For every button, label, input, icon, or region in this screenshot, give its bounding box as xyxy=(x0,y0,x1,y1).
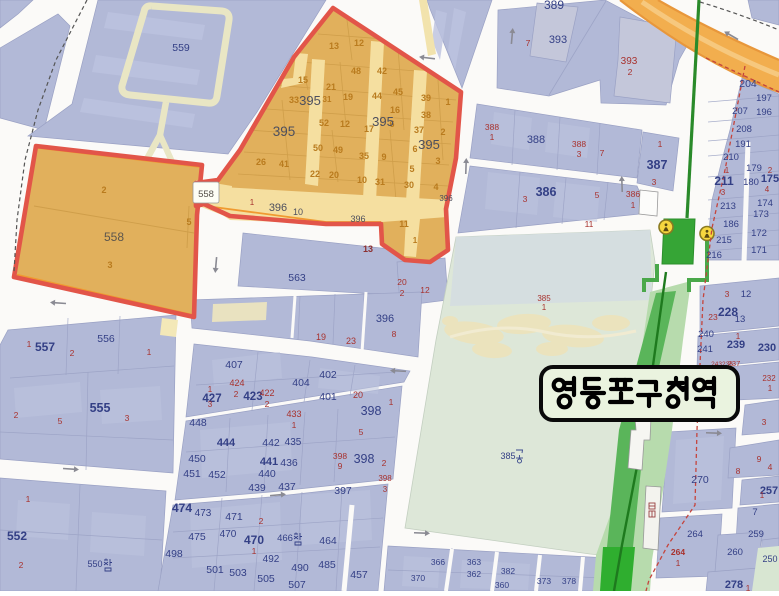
svg-text:180: 180 xyxy=(743,177,759,188)
svg-text:2: 2 xyxy=(628,67,633,77)
svg-text:378: 378 xyxy=(562,576,576,586)
svg-text:38: 38 xyxy=(421,110,431,120)
svg-text:3: 3 xyxy=(208,400,213,409)
svg-text:8: 8 xyxy=(736,466,741,476)
svg-text:2: 2 xyxy=(101,185,106,195)
svg-text:23: 23 xyxy=(708,312,718,322)
svg-text:6: 6 xyxy=(412,144,417,154)
svg-text:485: 485 xyxy=(318,559,336,571)
svg-text:211: 211 xyxy=(714,174,734,188)
svg-text:1: 1 xyxy=(147,347,152,357)
svg-text:172: 172 xyxy=(751,228,767,239)
svg-text:20: 20 xyxy=(353,390,363,400)
svg-text:436: 436 xyxy=(280,457,298,469)
svg-text:48: 48 xyxy=(351,66,361,76)
svg-text:5: 5 xyxy=(186,217,191,227)
svg-text:558: 558 xyxy=(104,230,124,244)
svg-text:393: 393 xyxy=(549,34,567,46)
svg-text:558: 558 xyxy=(198,189,214,200)
svg-text:1: 1 xyxy=(208,385,213,394)
svg-text:240: 240 xyxy=(698,329,714,340)
svg-text:1: 1 xyxy=(27,339,32,349)
svg-text:396: 396 xyxy=(350,214,365,224)
svg-text:241: 241 xyxy=(697,344,713,355)
svg-text:451: 451 xyxy=(183,468,201,480)
svg-text:471: 471 xyxy=(225,511,243,523)
svg-text:171: 171 xyxy=(751,245,767,256)
svg-text:402: 402 xyxy=(319,369,337,381)
svg-text:395: 395 xyxy=(299,93,321,108)
svg-text:11: 11 xyxy=(399,219,409,229)
svg-text:457: 457 xyxy=(350,569,368,581)
svg-text:4: 4 xyxy=(433,182,438,192)
svg-text:13: 13 xyxy=(363,244,373,254)
svg-text:30: 30 xyxy=(404,180,414,190)
svg-text:389: 389 xyxy=(544,0,564,12)
svg-text:474: 474 xyxy=(172,501,192,515)
svg-text:475: 475 xyxy=(188,531,206,543)
svg-text:559: 559 xyxy=(172,42,190,54)
svg-text:2: 2 xyxy=(234,389,239,399)
svg-text:1: 1 xyxy=(413,236,418,245)
svg-text:35: 35 xyxy=(359,151,369,161)
svg-text:7: 7 xyxy=(526,38,531,48)
svg-text:41: 41 xyxy=(279,159,289,169)
svg-text:490: 490 xyxy=(291,562,309,574)
svg-text:439: 439 xyxy=(248,482,266,494)
svg-text:12: 12 xyxy=(420,285,430,295)
svg-text:385: 385 xyxy=(537,294,551,303)
svg-text:2: 2 xyxy=(382,458,387,468)
svg-text:395: 395 xyxy=(273,124,296,139)
svg-text:12: 12 xyxy=(354,38,364,48)
svg-text:1: 1 xyxy=(746,583,751,591)
svg-text:4: 4 xyxy=(768,462,773,472)
svg-text:5: 5 xyxy=(359,427,364,437)
svg-text:259: 259 xyxy=(748,529,764,540)
svg-text:442: 442 xyxy=(262,437,280,449)
svg-text:388: 388 xyxy=(485,122,499,132)
svg-text:1: 1 xyxy=(445,97,450,107)
svg-text:404: 404 xyxy=(292,377,310,389)
svg-text:498: 498 xyxy=(165,548,183,560)
svg-text:466: 466 xyxy=(277,533,293,544)
svg-text:1: 1 xyxy=(768,384,773,393)
svg-text:45: 45 xyxy=(393,87,403,97)
svg-text:363: 363 xyxy=(467,557,481,567)
svg-text:5: 5 xyxy=(58,416,63,426)
svg-text:213: 213 xyxy=(720,201,736,212)
svg-text:1: 1 xyxy=(736,332,741,341)
svg-text:2: 2 xyxy=(19,560,24,570)
svg-text:388: 388 xyxy=(572,139,586,149)
svg-text:33: 33 xyxy=(289,95,299,105)
svg-text:2: 2 xyxy=(440,127,445,137)
svg-text:31: 31 xyxy=(375,177,385,187)
svg-text:191: 191 xyxy=(735,139,751,150)
svg-text:19: 19 xyxy=(316,332,326,342)
svg-text:473: 473 xyxy=(195,508,212,519)
svg-text:444: 444 xyxy=(217,437,236,449)
svg-text:4: 4 xyxy=(765,185,770,194)
svg-text:12: 12 xyxy=(741,289,752,300)
svg-text:448: 448 xyxy=(189,417,207,429)
svg-text:1: 1 xyxy=(252,546,257,556)
svg-text:230: 230 xyxy=(758,342,776,354)
svg-text:387: 387 xyxy=(647,158,668,172)
svg-text:174: 174 xyxy=(757,198,773,209)
svg-text:1: 1 xyxy=(676,558,681,568)
svg-text:250: 250 xyxy=(762,554,777,564)
svg-text:3: 3 xyxy=(762,417,767,427)
svg-text:386: 386 xyxy=(536,185,557,199)
svg-text:207: 207 xyxy=(732,106,748,117)
svg-text:470: 470 xyxy=(244,533,264,547)
svg-text:10: 10 xyxy=(357,175,367,185)
svg-text:1: 1 xyxy=(658,139,663,149)
svg-text:3: 3 xyxy=(435,156,440,166)
svg-text:360: 360 xyxy=(495,580,509,590)
svg-text:260: 260 xyxy=(727,547,743,558)
svg-text:507: 507 xyxy=(288,579,306,591)
svg-text:179: 179 xyxy=(746,163,762,174)
svg-text:373: 373 xyxy=(537,576,551,586)
svg-text:1: 1 xyxy=(250,198,255,207)
svg-text:440: 440 xyxy=(258,468,276,480)
svg-text:31: 31 xyxy=(323,95,332,104)
svg-text:186: 186 xyxy=(723,219,739,230)
svg-text:395: 395 xyxy=(418,137,440,152)
svg-text:1: 1 xyxy=(26,494,31,504)
svg-text:435: 435 xyxy=(285,437,302,448)
svg-text:424: 424 xyxy=(229,378,244,388)
svg-text:563: 563 xyxy=(288,272,306,284)
svg-text:8: 8 xyxy=(392,329,397,339)
svg-text:422: 422 xyxy=(259,388,274,398)
svg-text:433: 433 xyxy=(286,409,301,419)
svg-text:7: 7 xyxy=(752,507,757,518)
svg-text:3: 3 xyxy=(125,413,130,423)
svg-text:3: 3 xyxy=(577,149,582,159)
svg-text:505: 505 xyxy=(257,573,275,585)
svg-text:15: 15 xyxy=(298,75,308,85)
svg-text:395: 395 xyxy=(372,114,394,129)
svg-text:13: 13 xyxy=(735,314,746,325)
svg-text:3: 3 xyxy=(523,194,528,204)
svg-text:9: 9 xyxy=(381,152,386,162)
svg-text:382: 382 xyxy=(501,566,515,576)
svg-text:3: 3 xyxy=(652,177,657,187)
svg-text:370: 370 xyxy=(411,573,425,583)
svg-text:1: 1 xyxy=(760,491,765,500)
svg-text:10: 10 xyxy=(293,207,303,217)
svg-text:1: 1 xyxy=(725,166,730,175)
svg-text:50: 50 xyxy=(313,143,323,153)
svg-text:1: 1 xyxy=(490,132,495,142)
svg-text:197: 197 xyxy=(756,93,772,104)
svg-text:452: 452 xyxy=(208,469,226,481)
svg-text:398: 398 xyxy=(333,451,347,461)
svg-text:9: 9 xyxy=(757,454,762,464)
svg-text:396: 396 xyxy=(269,202,287,214)
svg-text:264: 264 xyxy=(687,529,703,540)
svg-text:173: 173 xyxy=(753,209,769,220)
svg-text:397: 397 xyxy=(334,485,352,497)
svg-text:2: 2 xyxy=(259,516,264,526)
svg-text:492: 492 xyxy=(263,554,280,565)
svg-text:216: 216 xyxy=(706,250,722,261)
svg-text:270: 270 xyxy=(691,474,709,486)
svg-text:264: 264 xyxy=(671,547,685,557)
svg-text:23: 23 xyxy=(346,336,356,346)
svg-text:386: 386 xyxy=(626,189,640,199)
svg-text:2: 2 xyxy=(265,399,270,409)
svg-text:557: 557 xyxy=(35,340,55,354)
svg-text:398: 398 xyxy=(354,452,375,466)
svg-text:11: 11 xyxy=(585,219,594,229)
svg-text:21: 21 xyxy=(326,82,336,92)
svg-text:49: 49 xyxy=(333,145,343,155)
svg-text:398: 398 xyxy=(361,404,382,418)
svg-text:550: 550 xyxy=(87,559,102,569)
svg-text:1: 1 xyxy=(631,200,636,210)
svg-text:12: 12 xyxy=(340,119,350,129)
svg-text:3: 3 xyxy=(721,188,726,197)
svg-text:450: 450 xyxy=(188,453,206,465)
svg-text:437: 437 xyxy=(278,481,296,493)
svg-text:215: 215 xyxy=(716,235,732,246)
svg-text:26: 26 xyxy=(256,157,266,167)
svg-text:5: 5 xyxy=(595,190,600,200)
svg-text:208: 208 xyxy=(736,124,752,135)
svg-text:362: 362 xyxy=(467,569,481,579)
svg-text:39: 39 xyxy=(421,93,431,103)
svg-text:398: 398 xyxy=(378,474,392,483)
svg-text:441: 441 xyxy=(260,456,278,468)
svg-text:9: 9 xyxy=(338,461,343,471)
svg-text:2: 2 xyxy=(14,410,19,420)
svg-text:20: 20 xyxy=(397,277,407,287)
svg-text:232: 232 xyxy=(762,374,776,383)
svg-text:7: 7 xyxy=(600,148,605,158)
svg-text:503: 503 xyxy=(229,567,247,579)
svg-text:501: 501 xyxy=(206,564,224,576)
svg-text:396: 396 xyxy=(439,194,453,203)
svg-text:3: 3 xyxy=(383,485,388,494)
svg-text:42: 42 xyxy=(377,66,387,76)
svg-text:204: 204 xyxy=(739,78,757,90)
svg-text:552: 552 xyxy=(7,529,27,543)
svg-text:464: 464 xyxy=(319,535,337,547)
svg-text:2: 2 xyxy=(400,288,405,298)
svg-text:3: 3 xyxy=(107,260,112,270)
svg-text:19: 19 xyxy=(343,92,353,102)
svg-text:3: 3 xyxy=(725,289,730,299)
svg-text:37: 37 xyxy=(414,125,424,135)
svg-text:470: 470 xyxy=(220,529,237,540)
svg-text:1: 1 xyxy=(542,303,547,312)
svg-text:278: 278 xyxy=(725,579,743,591)
svg-text:388: 388 xyxy=(527,134,545,146)
svg-text:556: 556 xyxy=(97,333,115,345)
svg-text:52: 52 xyxy=(319,118,329,128)
svg-text:2: 2 xyxy=(70,348,75,358)
svg-text:555: 555 xyxy=(90,401,111,415)
svg-text:393: 393 xyxy=(621,56,638,67)
svg-text:5: 5 xyxy=(409,164,414,174)
svg-text:1: 1 xyxy=(389,397,394,407)
svg-text:401: 401 xyxy=(319,391,337,403)
svg-text:22: 22 xyxy=(310,169,320,179)
svg-text:407: 407 xyxy=(225,359,243,371)
svg-text:1: 1 xyxy=(292,420,297,430)
svg-text:396: 396 xyxy=(376,313,394,325)
svg-text:366: 366 xyxy=(431,557,445,567)
svg-text:20: 20 xyxy=(329,170,339,180)
svg-text:44: 44 xyxy=(372,91,382,101)
svg-text:2: 2 xyxy=(768,166,773,175)
svg-text:210: 210 xyxy=(723,152,739,163)
svg-text:196: 196 xyxy=(756,107,772,118)
svg-text:13: 13 xyxy=(329,41,339,51)
svg-text:385: 385 xyxy=(500,451,515,461)
